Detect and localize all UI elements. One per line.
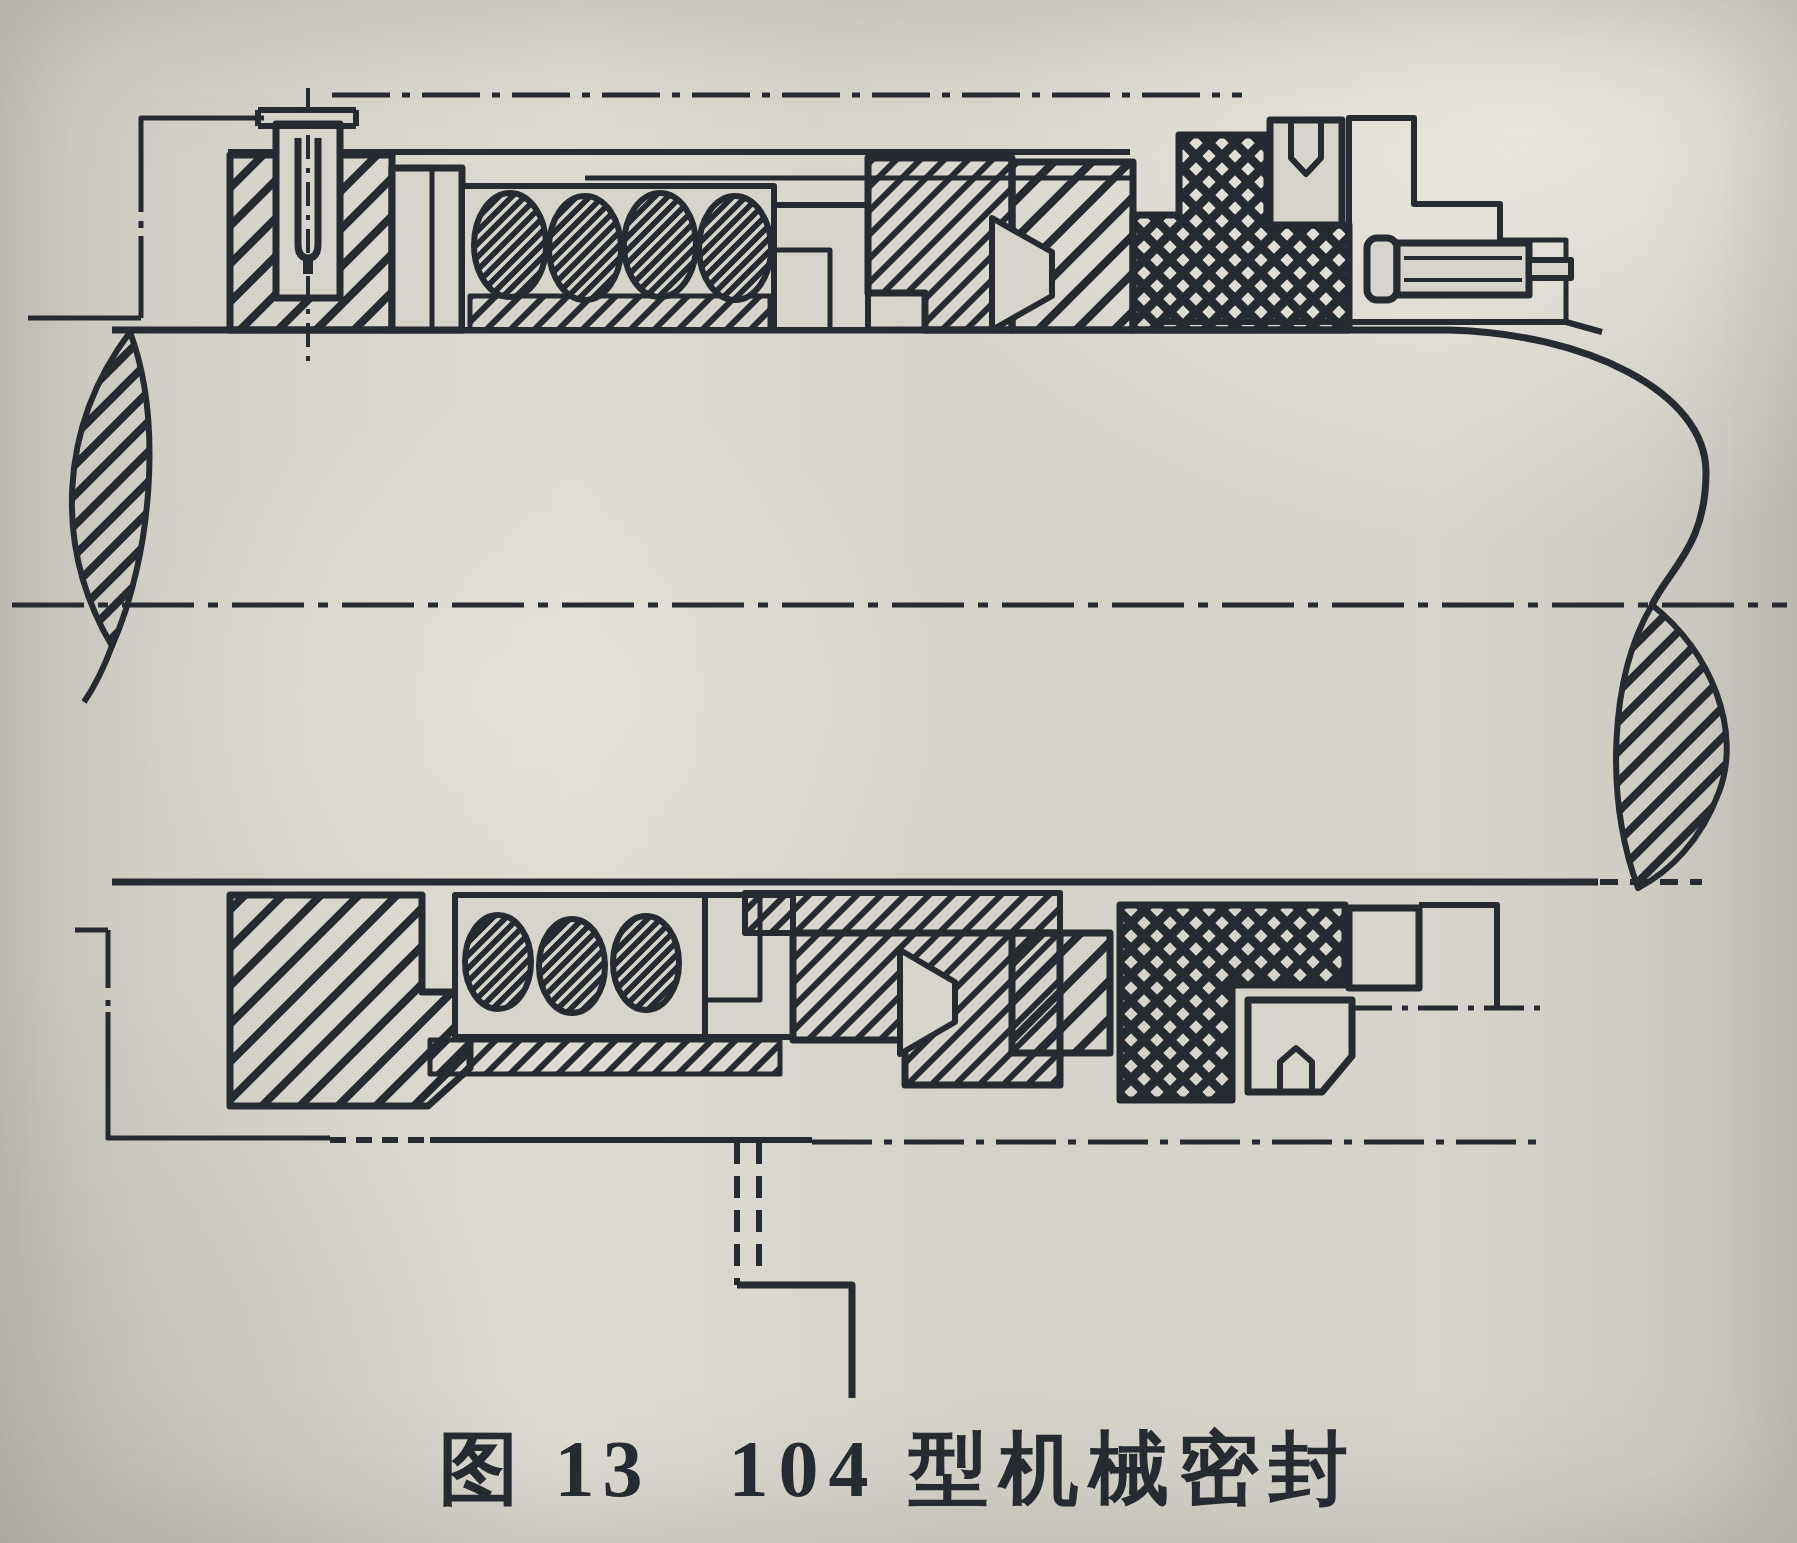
set-screw-tip — [1529, 260, 1571, 278]
shaft-right-break-curve — [1448, 330, 1706, 605]
spring-coil — [465, 915, 531, 1009]
shaft-sleeve-band-bottom — [430, 1040, 780, 1074]
shaft-break-symbol-left — [72, 332, 150, 646]
spring-coil — [613, 916, 679, 1010]
retainer-collar-bottom — [1248, 1000, 1352, 1092]
shaft — [72, 330, 1727, 888]
drive-band-bottom — [745, 893, 1060, 933]
spring-coil — [549, 196, 621, 300]
stationary-seal-ring — [392, 168, 462, 330]
figure-title: 104 型机械密封 — [729, 1416, 1359, 1524]
figure-caption: 图 13 104 型机械密封 — [439, 1416, 1359, 1524]
figure-number: 图 13 — [439, 1416, 651, 1524]
spring-coil — [624, 193, 696, 297]
shaft-break-left-tail — [84, 646, 112, 702]
spring-coil — [699, 196, 771, 300]
carrier-window-bottom — [1349, 908, 1419, 988]
mechanical-seal-cross-section-drawing — [0, 0, 1797, 1543]
pipe-elbow — [737, 1285, 852, 1398]
spring-coil — [539, 919, 605, 1013]
set-screw-head — [1367, 238, 1397, 300]
flush-port-pipe — [737, 1142, 852, 1398]
seal-ring-carrier-bottom — [1012, 933, 1110, 1053]
rotating-ring-housing — [774, 205, 868, 330]
bottom-seal-assembly — [75, 893, 1545, 1142]
spring-coil — [474, 193, 546, 297]
top-seal-assembly — [28, 88, 1602, 362]
set-screw-body — [1397, 243, 1529, 295]
bottom-right-housing — [1419, 905, 1497, 1008]
shaft-break-symbol-right — [1616, 605, 1727, 888]
